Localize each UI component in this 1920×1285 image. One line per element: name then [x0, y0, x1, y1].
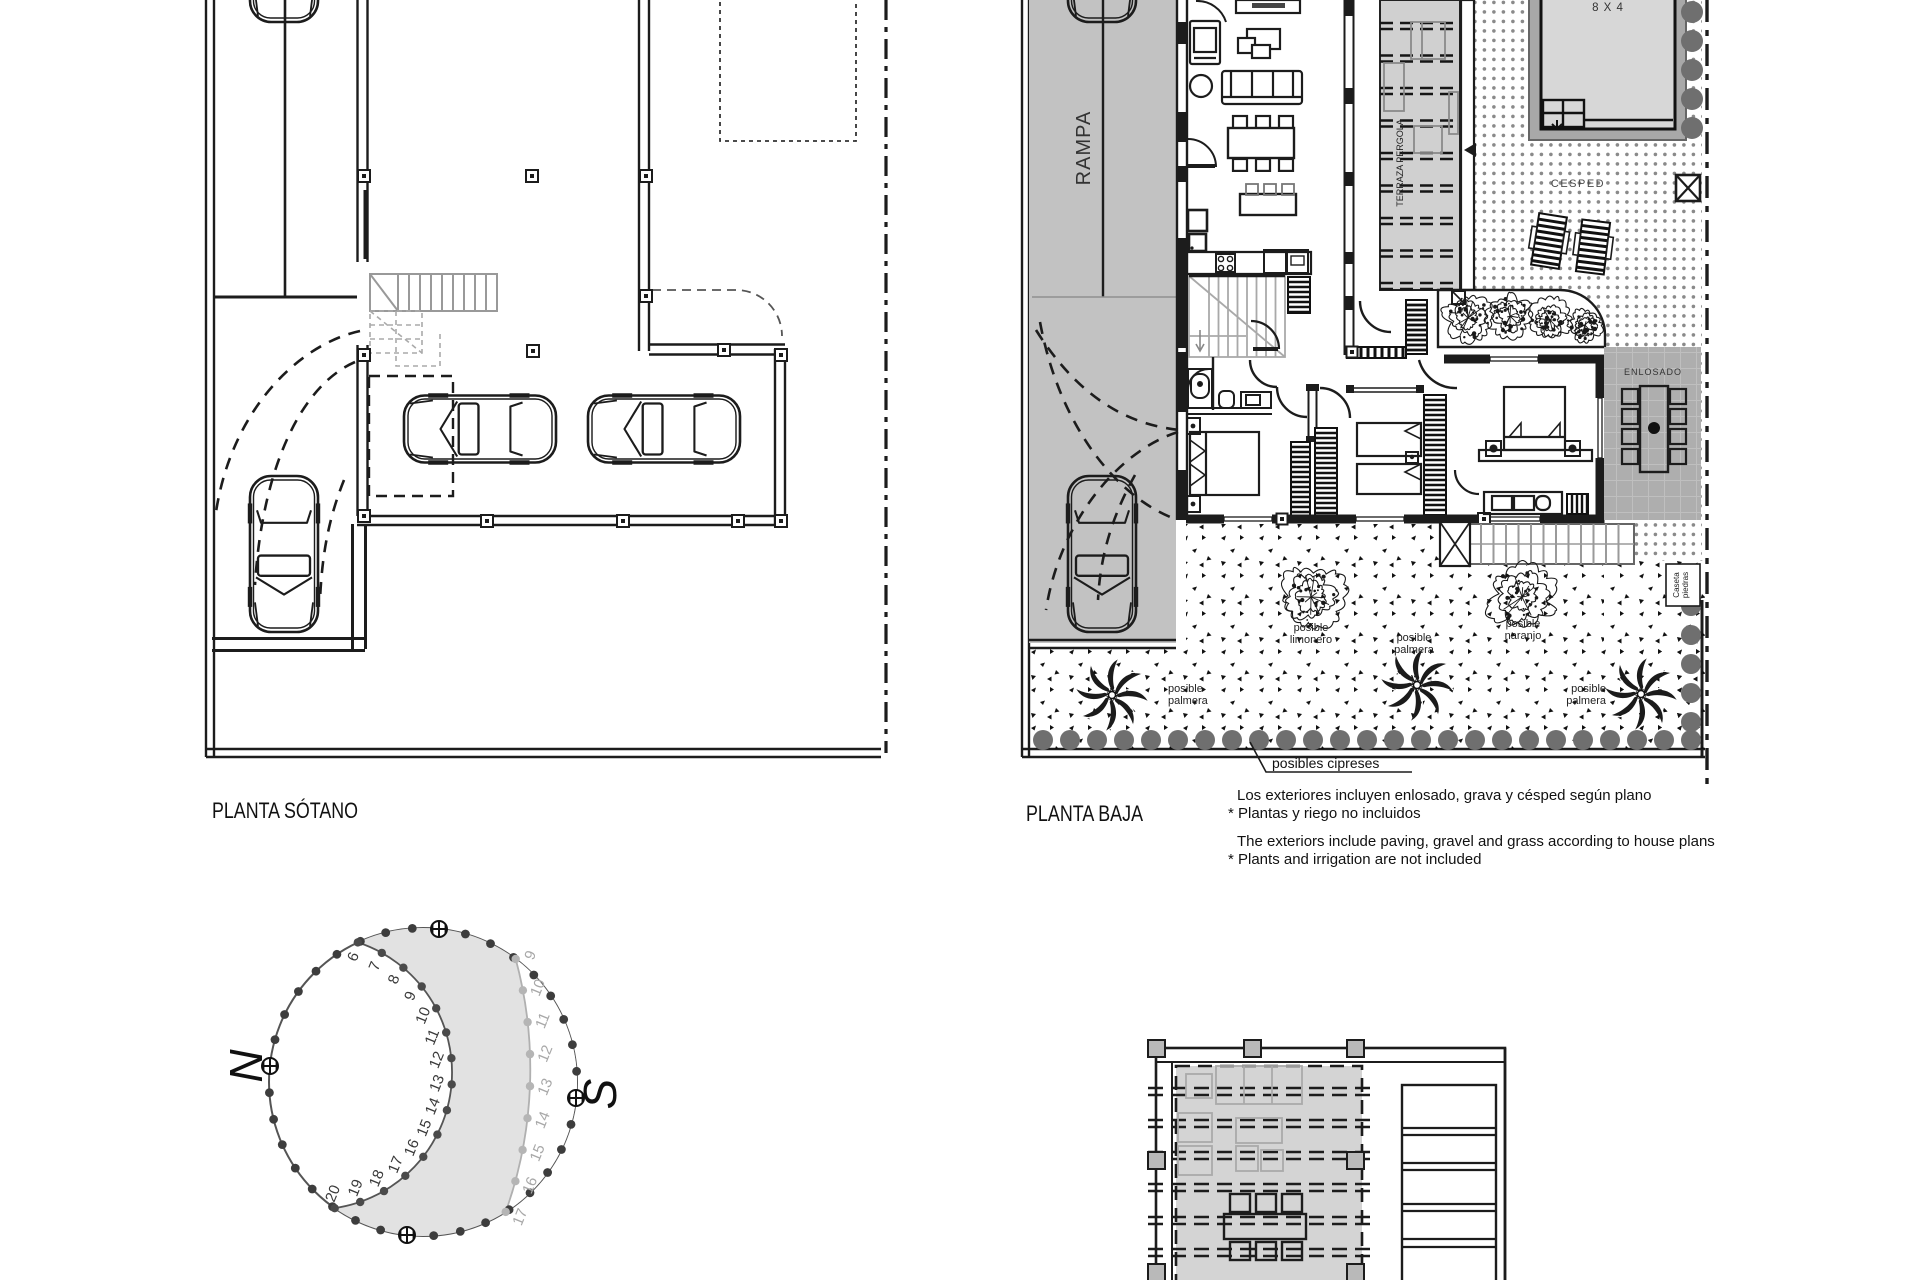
svg-text:Caseta: Caseta — [1672, 572, 1681, 598]
svg-text:palmera: palmera — [1566, 695, 1607, 707]
svg-text:The exteriors include paving,: The exteriors include paving, gravel and… — [1237, 833, 1715, 850]
svg-text:posible: posible — [1506, 618, 1541, 630]
svg-text:TERRAZA PERGOLA: TERRAZA PERGOLA — [1395, 119, 1405, 207]
svg-text:posibles cipreses: posibles cipreses — [1272, 755, 1379, 771]
svg-text:posible: posible — [1168, 683, 1203, 695]
svg-text:8 X 4: 8 X 4 — [1592, 2, 1624, 14]
svg-text:palmera: palmera — [1394, 644, 1435, 656]
svg-text:posible: posible — [1397, 632, 1432, 644]
svg-text:ENLOSADO: ENLOSADO — [1624, 367, 1682, 377]
svg-text:* Plants and irrigation are no: * Plants and irrigation are not included — [1228, 851, 1482, 868]
svg-text:Los exteriores incluyen enlosa: Los exteriores incluyen enlosado, grava … — [1237, 787, 1651, 804]
svg-text:PLANTA BAJA: PLANTA BAJA — [1026, 801, 1143, 826]
svg-text:piedras: piedras — [1681, 572, 1690, 598]
svg-text:posible: posible — [1294, 622, 1329, 634]
svg-text:posible: posible — [1571, 683, 1606, 695]
svg-text:naranjo: naranjo — [1505, 630, 1542, 642]
svg-text:CESPED: CESPED — [1551, 178, 1605, 190]
svg-text:N: N — [220, 1049, 272, 1083]
svg-text:* Plantas y riego no incluidos: * Plantas y riego no incluidos — [1228, 805, 1421, 822]
svg-text:palmera: palmera — [1168, 695, 1209, 707]
svg-text:PLANTA SÓTANO: PLANTA SÓTANO — [212, 798, 358, 823]
svg-text:S: S — [574, 1078, 626, 1109]
svg-text:limonero: limonero — [1290, 634, 1332, 646]
svg-text:RAMPA: RAMPA — [1073, 111, 1095, 186]
